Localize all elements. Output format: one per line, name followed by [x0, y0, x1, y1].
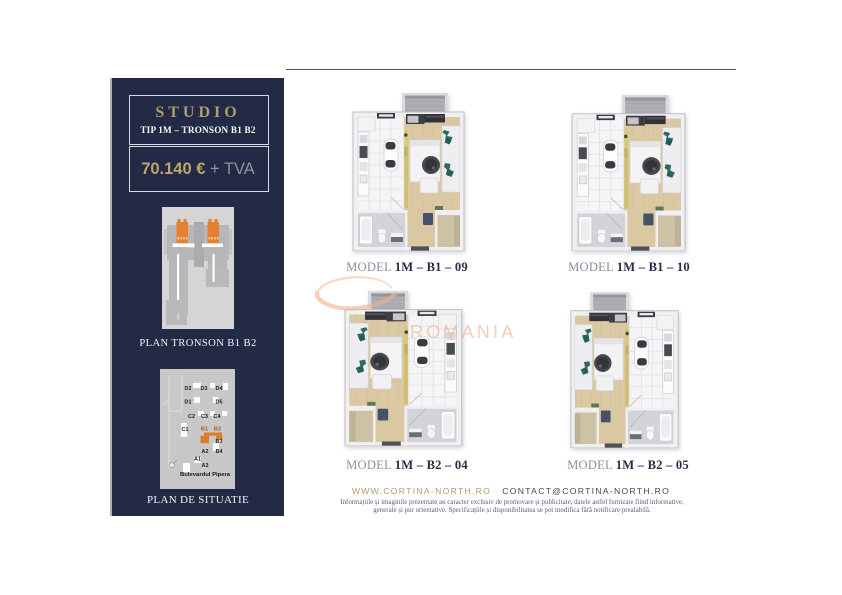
svg-text:D2: D2	[185, 386, 192, 392]
svg-text:A2: A2	[202, 449, 209, 455]
svg-text:B2: B2	[214, 427, 221, 433]
svg-text:D4: D4	[216, 386, 223, 392]
svg-text:D5: D5	[216, 400, 223, 406]
svg-text:B4: B4	[216, 449, 223, 455]
svg-text:C1: C1	[182, 427, 189, 433]
svg-text:Bulevardul Pipera: Bulevardul Pipera	[180, 472, 231, 478]
svg-text:D1: D1	[185, 400, 192, 406]
svg-text:A3: A3	[202, 463, 209, 469]
svg-text:D3: D3	[201, 386, 208, 392]
svg-text:C3: C3	[201, 414, 208, 420]
svg-text:C4: C4	[214, 414, 221, 420]
svg-text:C2: C2	[188, 414, 195, 420]
svg-text:B3: B3	[216, 439, 223, 445]
svg-text:A1: A1	[194, 457, 201, 463]
svg-text:B1: B1	[201, 427, 208, 433]
